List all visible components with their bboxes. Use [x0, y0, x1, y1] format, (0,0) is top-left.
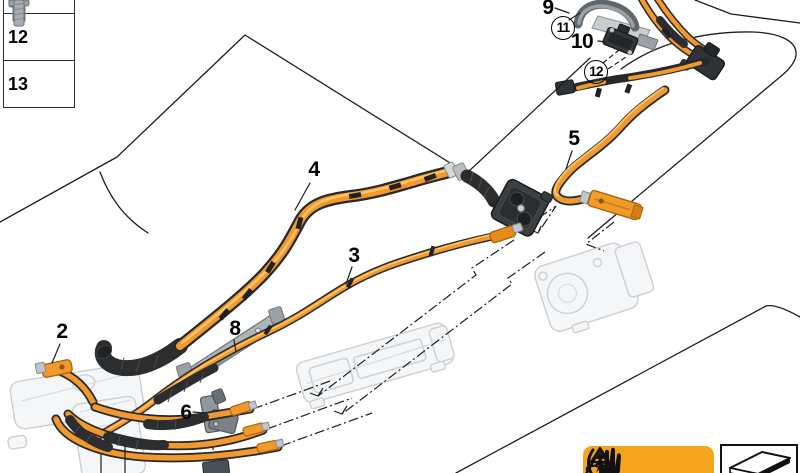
- legend-part-number: 13: [8, 74, 34, 95]
- callout-6[interactable]: 6: [176, 402, 196, 423]
- flag-terminal: [587, 190, 643, 221]
- charge-connector: [443, 162, 553, 239]
- parts-diagram-page: 2 3 4 5 6 8 9 10 11 12 12 13: [0, 0, 800, 473]
- callout-11-circled[interactable]: 11: [551, 16, 575, 40]
- adhesive-label-icon: [722, 446, 796, 473]
- callout-12-circled[interactable]: 12: [584, 60, 608, 84]
- protective-gloves-icon: [583, 446, 627, 473]
- callout-3[interactable]: 3: [344, 245, 364, 266]
- callout-8[interactable]: 8: [225, 318, 245, 339]
- callout-2[interactable]: 2: [52, 321, 72, 342]
- callout-4[interactable]: 4: [304, 159, 324, 180]
- fastener-legend-table: 12 13: [3, 0, 75, 108]
- callout-9[interactable]: 9: [538, 0, 558, 18]
- socket-head-screw-icon: [4, 0, 34, 29]
- legend-part-number: 12: [8, 27, 34, 48]
- legend-row-13[interactable]: 13: [4, 60, 74, 107]
- ghost-electric-machine: [532, 235, 659, 339]
- high-voltage-warning-label: [583, 446, 714, 473]
- ghost-power-module: [295, 321, 458, 410]
- diagram-artwork: [0, 0, 800, 473]
- callout-5[interactable]: 5: [564, 128, 584, 149]
- bundle-connector-tips: [229, 401, 283, 453]
- adhesive-label-box: [720, 444, 798, 473]
